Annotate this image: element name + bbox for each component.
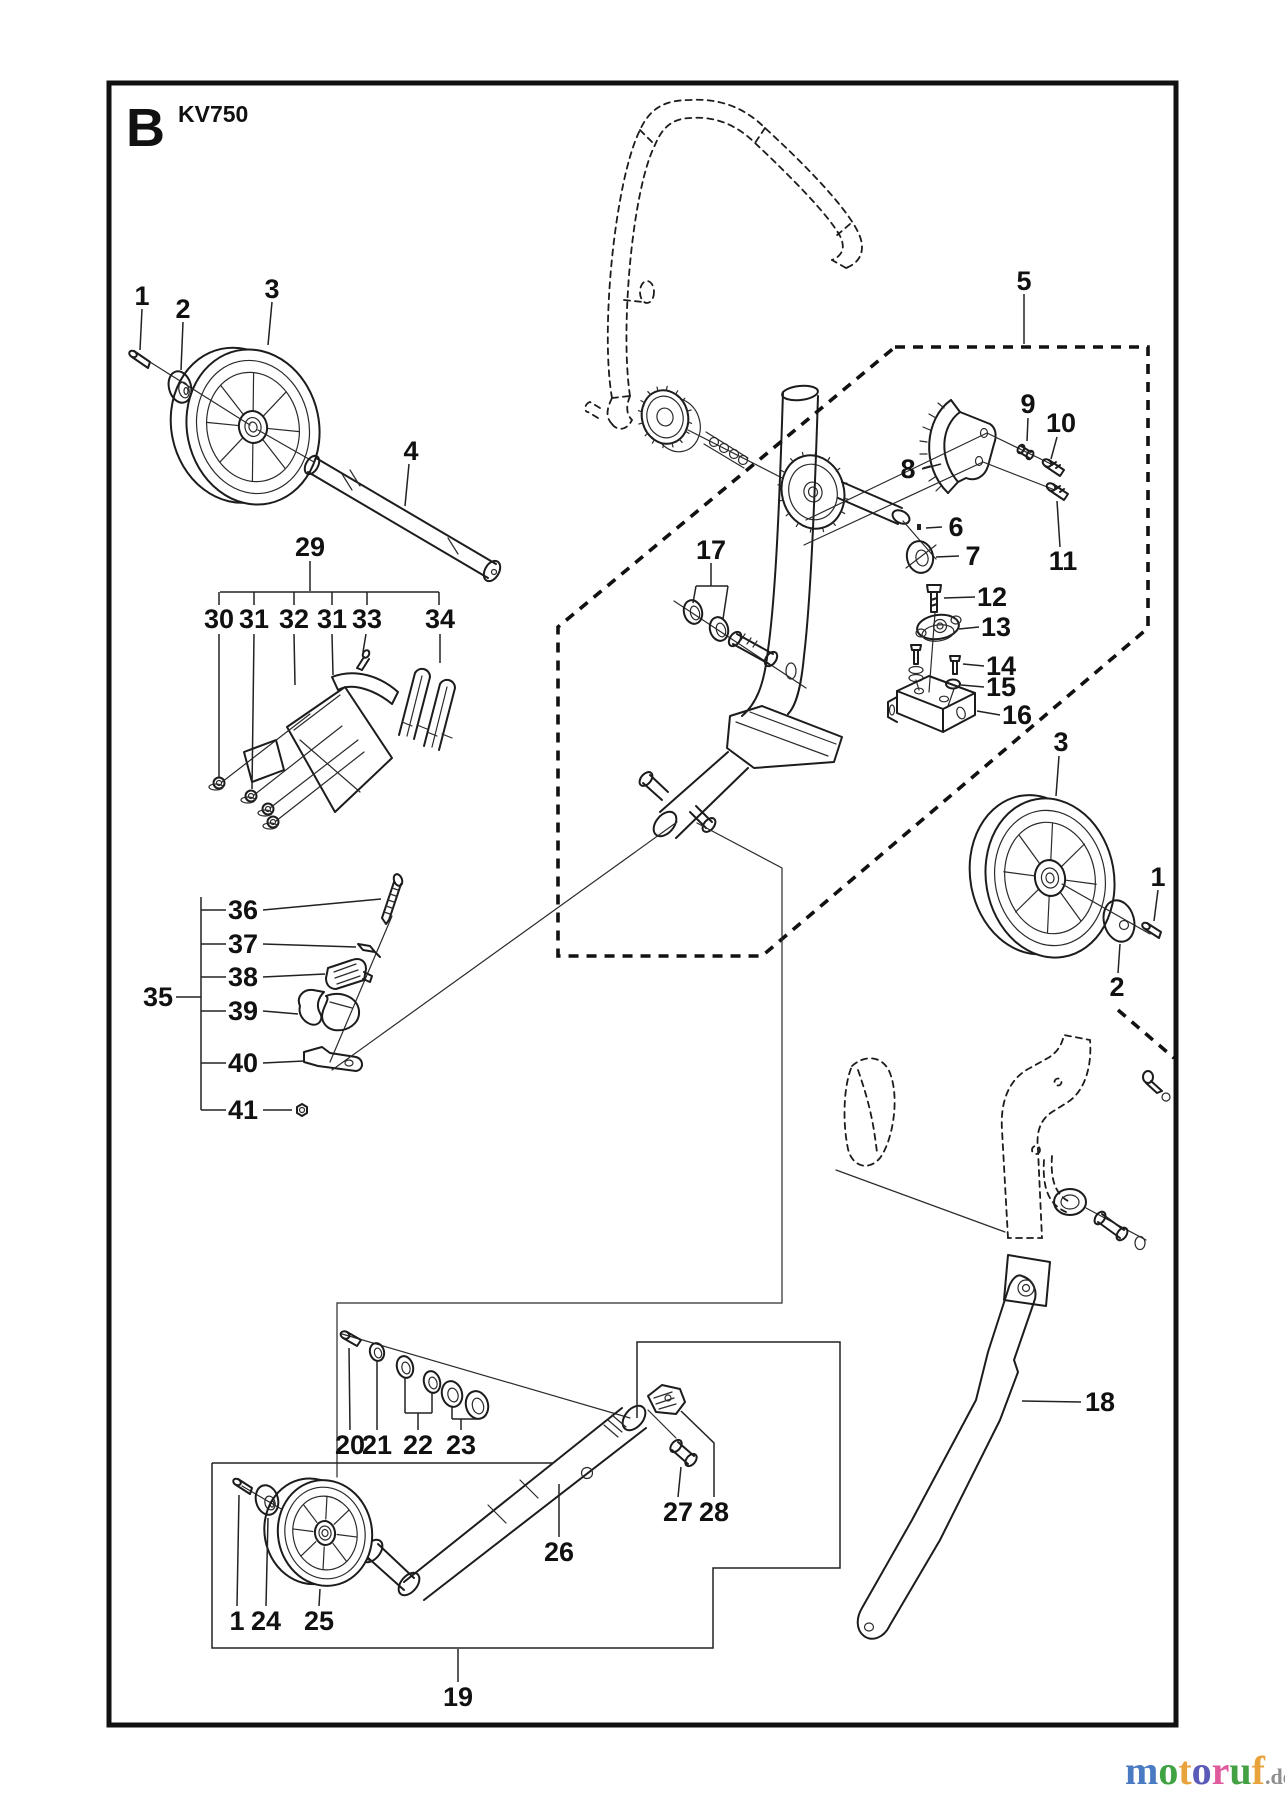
callout-31: 31 bbox=[239, 604, 269, 634]
callout-37: 37 bbox=[228, 929, 258, 959]
callout-2: 2 bbox=[175, 294, 190, 324]
callout-9: 9 bbox=[1020, 389, 1035, 419]
callout-30: 30 bbox=[204, 604, 234, 634]
callout-41: 41 bbox=[228, 1095, 258, 1125]
callout-leader-12 bbox=[944, 597, 975, 598]
callout-17: 17 bbox=[696, 535, 726, 565]
watermark-link[interactable]: motoruf.de bbox=[1125, 1748, 1285, 1793]
callout-35: 35 bbox=[143, 982, 173, 1012]
callout-32: 32 bbox=[279, 604, 309, 634]
section-letter: B bbox=[126, 98, 165, 158]
callout-28: 28 bbox=[699, 1497, 729, 1527]
callout-1: 1 bbox=[229, 1606, 244, 1636]
callout-24: 24 bbox=[251, 1606, 281, 1636]
callout-18: 18 bbox=[1085, 1387, 1115, 1417]
callout-20: 20 bbox=[335, 1430, 365, 1460]
callout-39: 39 bbox=[228, 996, 258, 1026]
callout-31: 31 bbox=[317, 604, 347, 634]
callout-36: 36 bbox=[228, 895, 258, 925]
callout-26: 26 bbox=[544, 1537, 574, 1567]
callout-22: 22 bbox=[403, 1430, 433, 1460]
model-code: KV750 bbox=[178, 101, 248, 127]
callout-21: 21 bbox=[362, 1430, 392, 1460]
callout-33: 33 bbox=[352, 604, 382, 634]
callout-1: 1 bbox=[1150, 862, 1165, 892]
callout-16: 16 bbox=[1002, 700, 1032, 730]
callout-34: 34 bbox=[425, 604, 455, 634]
exploded-parts-diagram: B KV750 bbox=[0, 0, 1285, 1800]
callout-6: 6 bbox=[948, 512, 963, 542]
watermark-tld: .de bbox=[1265, 1764, 1285, 1789]
callout-leader-7 bbox=[936, 556, 959, 557]
callout-29: 29 bbox=[295, 532, 325, 562]
screw-point-6 bbox=[917, 524, 921, 530]
callout-2: 2 bbox=[1109, 972, 1124, 1002]
callout-1: 1 bbox=[134, 281, 149, 311]
callout-25: 25 bbox=[304, 1606, 334, 1636]
callout-4: 4 bbox=[403, 436, 418, 466]
watermark-word[interactable]: motoruf.de bbox=[1125, 1748, 1285, 1793]
callout-leader-18 bbox=[1022, 1401, 1081, 1402]
callout-15: 15 bbox=[986, 672, 1016, 702]
callout-10: 10 bbox=[1046, 408, 1076, 438]
parts-diagram-page: B KV750 bbox=[0, 0, 1285, 1800]
callout-leader-31 bbox=[332, 634, 333, 675]
callout-40: 40 bbox=[228, 1048, 258, 1078]
callout-leader-6 bbox=[926, 527, 942, 528]
callout-23: 23 bbox=[446, 1430, 476, 1460]
callout-11: 11 bbox=[1049, 546, 1078, 576]
callout-8: 8 bbox=[900, 454, 915, 484]
callout-12: 12 bbox=[977, 582, 1007, 612]
callout-leader-32 bbox=[294, 634, 295, 685]
callout-19: 19 bbox=[443, 1682, 473, 1712]
callout-3: 3 bbox=[1053, 727, 1068, 757]
callout-leader-20 bbox=[349, 1348, 350, 1430]
callout-13: 13 bbox=[981, 612, 1011, 642]
callout-27: 27 bbox=[663, 1497, 693, 1527]
callout-5: 5 bbox=[1016, 266, 1031, 296]
callout-7: 7 bbox=[965, 541, 980, 571]
callout-leader-25 bbox=[319, 1589, 320, 1606]
callout-3: 3 bbox=[264, 274, 279, 304]
callout-38: 38 bbox=[228, 962, 258, 992]
callout-leader-9 bbox=[1027, 418, 1028, 441]
